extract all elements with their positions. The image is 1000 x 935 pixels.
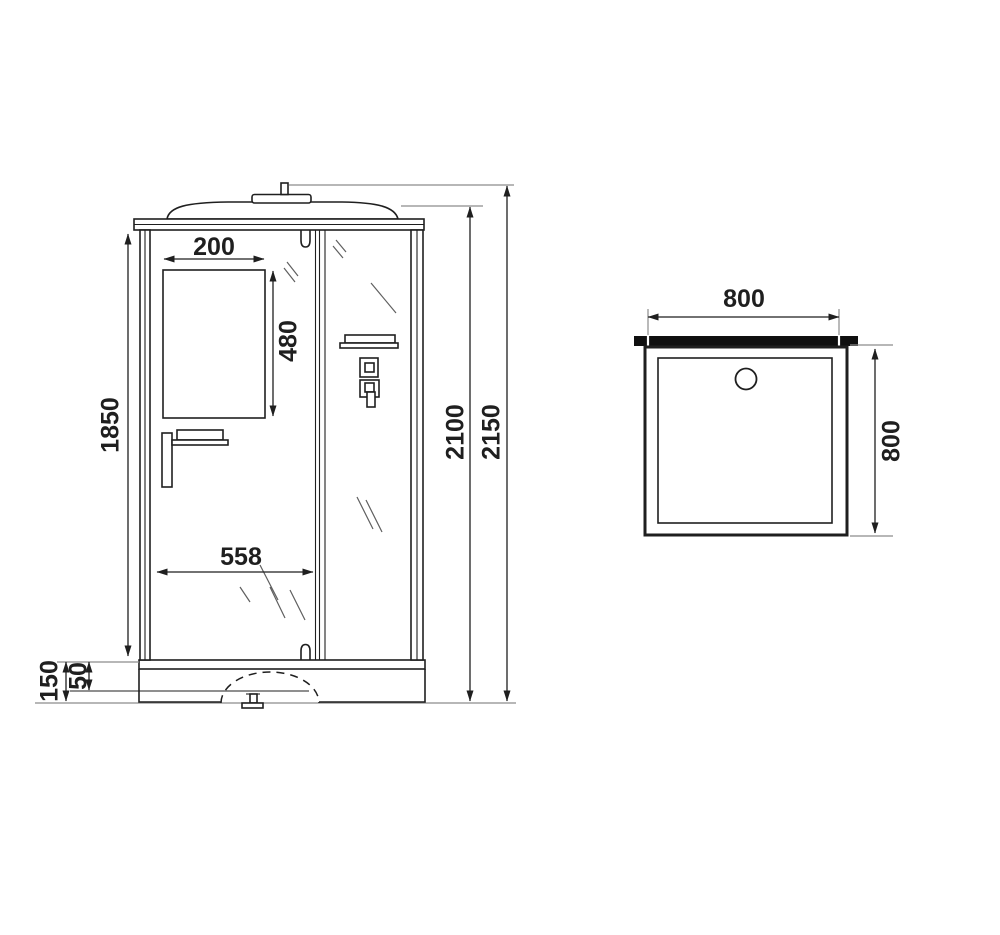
grab-bar xyxy=(162,433,172,487)
shower-cabin-technical-drawing: 200 480 1850 558 2100 2150 xyxy=(0,0,1000,935)
dim-mirror-height: 480 xyxy=(273,271,303,416)
front-view-dimensions: 200 480 1850 558 2100 2150 xyxy=(36,185,515,702)
door-handle-bottom xyxy=(301,645,310,661)
dim-total-height: 2150 xyxy=(289,185,514,701)
roof-dome xyxy=(167,202,398,219)
dim-label-total-height: 2150 xyxy=(478,404,506,460)
water-pipe xyxy=(281,183,288,195)
tray-rim xyxy=(139,660,425,669)
dim-label-door-opening-width: 558 xyxy=(220,543,262,571)
dim-door-opening-width: 558 xyxy=(157,543,313,572)
door-divider-post xyxy=(316,230,326,660)
dim-label-glass-panel-height: 1850 xyxy=(97,397,125,453)
dim-label-tray-total-height: 150 xyxy=(36,660,64,702)
mirror xyxy=(163,270,265,418)
dim-glass-panel-height: 1850 xyxy=(97,234,129,656)
dim-tray-inner-depth: 50 xyxy=(65,662,93,690)
door-handle-top xyxy=(301,231,310,248)
dim-label-mirror-width: 200 xyxy=(193,233,235,261)
dim-tray-width: 800 xyxy=(648,285,839,335)
dim-label-tray-width: 800 xyxy=(723,285,765,313)
dim-mirror-width: 200 xyxy=(164,233,264,261)
right-shelf xyxy=(340,335,398,348)
dim-label-tray-inner-depth: 50 xyxy=(65,662,93,690)
dim-tray-depth: 800 xyxy=(850,345,906,536)
back-wall-fixtures xyxy=(162,270,398,487)
left-shelf xyxy=(172,430,228,445)
top-view: 800 800 xyxy=(634,285,906,536)
tray-outline-outer xyxy=(645,347,847,535)
adjustable-foot xyxy=(242,694,263,708)
roof-assembly xyxy=(134,183,424,230)
control-button xyxy=(360,358,378,377)
drawing-page: 200 480 1850 558 2100 2150 xyxy=(0,0,1000,935)
tray-skirt xyxy=(139,669,425,702)
dim-label-cabin-height: 2100 xyxy=(442,404,470,460)
mixer-knob xyxy=(360,380,379,407)
dim-label-mirror-height: 480 xyxy=(275,320,303,362)
back-wall-bar xyxy=(634,336,858,346)
door-handles xyxy=(301,231,310,661)
front-view: 200 480 1850 558 2100 2150 xyxy=(35,183,516,708)
shower-tray-base xyxy=(70,660,425,708)
tray-front-arch xyxy=(221,672,319,703)
dim-label-tray-depth: 800 xyxy=(878,420,906,462)
roof-cap xyxy=(252,195,311,204)
